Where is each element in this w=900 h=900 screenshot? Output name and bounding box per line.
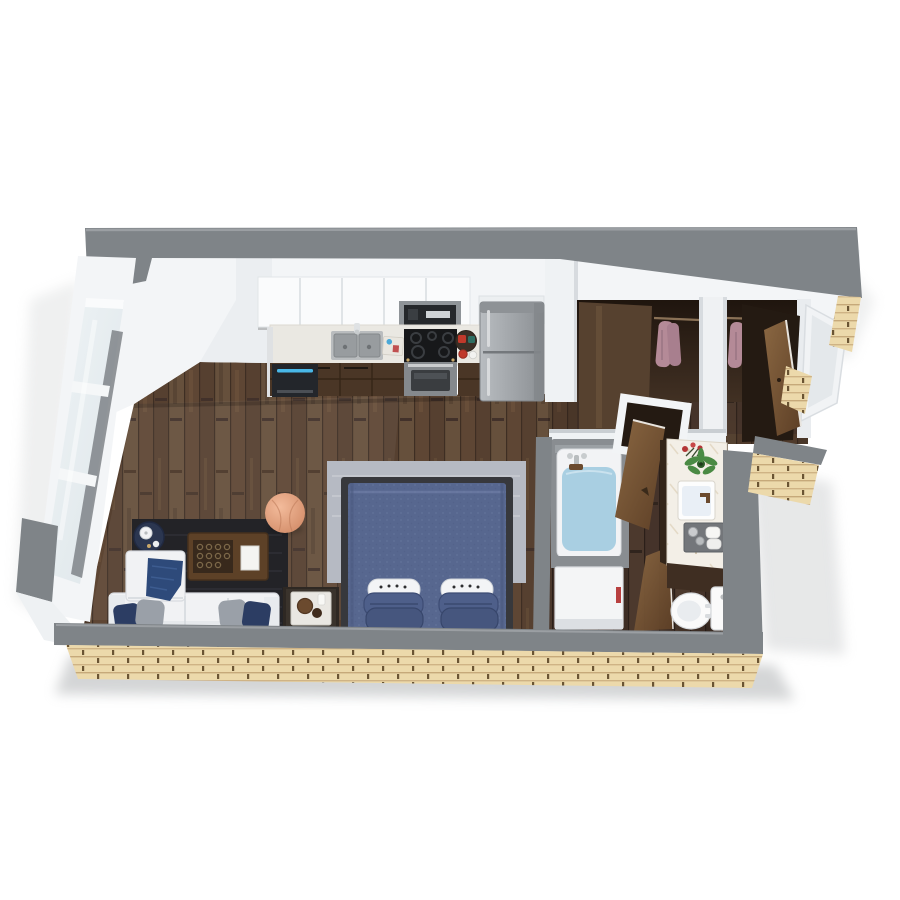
panel-sheen xyxy=(596,306,602,428)
decor-box-small xyxy=(312,608,322,618)
tub-water xyxy=(562,467,616,551)
vanity xyxy=(660,439,727,594)
vanity-sink xyxy=(678,481,715,520)
closet-jamb xyxy=(699,297,727,436)
kitchen-divider-wall xyxy=(545,256,578,402)
oven-handle xyxy=(408,364,453,367)
bathroom-left-wall xyxy=(533,437,552,642)
candle xyxy=(318,594,325,605)
laundry-cabinet xyxy=(555,567,623,629)
cooktop-and-oven xyxy=(404,329,457,396)
teacup xyxy=(153,541,159,547)
serving-tray xyxy=(456,331,477,359)
red-towel xyxy=(616,587,621,603)
decor-box-large xyxy=(298,599,313,614)
round-side-table xyxy=(134,522,164,552)
prep-board xyxy=(382,336,403,355)
microwave xyxy=(399,301,461,328)
dishwasher xyxy=(272,364,318,397)
red-mug xyxy=(459,350,467,358)
left-bottom-cap xyxy=(16,518,58,602)
floorplan-render xyxy=(0,0,900,900)
coffee-table xyxy=(188,533,268,580)
fridge-door-split xyxy=(483,351,541,354)
refrigerator xyxy=(480,302,544,401)
pouf xyxy=(265,493,305,533)
floorplan-svg xyxy=(0,0,900,900)
kitchen xyxy=(258,277,544,401)
vanity-side xyxy=(660,440,667,565)
cap-highlight xyxy=(86,229,856,230)
fridge-handle-top xyxy=(487,310,490,347)
tub-divider-wall xyxy=(551,556,629,568)
fridge-handle-bottom xyxy=(487,358,490,396)
book xyxy=(241,546,259,570)
towel-tray xyxy=(684,523,724,552)
nightstand xyxy=(283,587,339,631)
white-mug xyxy=(469,351,477,359)
door-knob xyxy=(777,378,781,382)
bathtub xyxy=(551,439,629,565)
